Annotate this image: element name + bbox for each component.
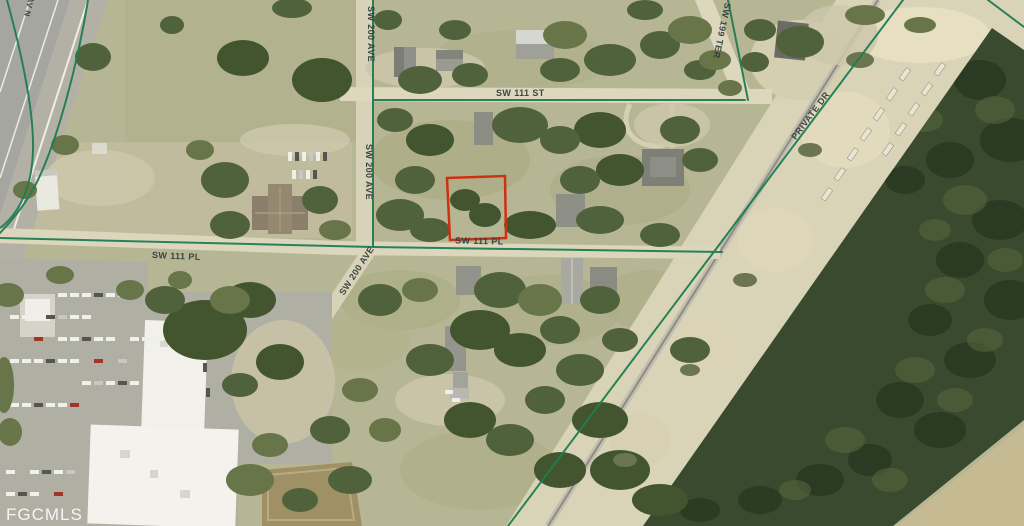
watermark-fgcmls: FGCMLS [6, 505, 83, 525]
shed [92, 143, 107, 154]
street-label-sw-200-ave-mid: SW 200 AVE [364, 144, 373, 200]
street-label-sw-111-pl-center: SW 111 PL [455, 236, 504, 246]
aerial-map-screenshot: SW 200 AVE SW 200 AVE SW 200 AVE SW 111 … [0, 0, 1024, 526]
aerial-imagery [0, 0, 1024, 526]
street-label-sw-111-st: SW 111 ST [496, 89, 545, 98]
street-label-sw-200-ave-north: SW 200 AVE [366, 6, 375, 62]
small-white-building [35, 169, 60, 210]
